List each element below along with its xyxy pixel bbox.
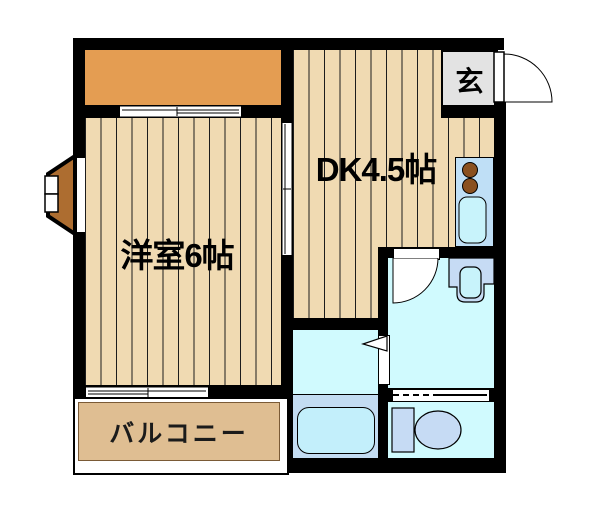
accordion-partition-dashed-line — [393, 394, 439, 396]
wall-left-lower — [73, 232, 85, 397]
washbasin-bowl — [460, 267, 481, 298]
toilet-tank — [392, 408, 414, 452]
wall-top — [73, 38, 504, 50]
balcony-deck: バルコニー — [78, 402, 280, 461]
wall-bottom-right — [281, 458, 506, 473]
entrance-door-icon — [490, 45, 560, 110]
closet-sliding-door — [120, 106, 242, 117]
toilet-icon — [388, 402, 494, 458]
stove-burner-icon — [463, 163, 478, 178]
kitchen-sink-icon — [459, 197, 486, 243]
bay-window-icon — [42, 150, 82, 240]
bath-folding-door-flag — [363, 336, 387, 351]
stove-burner-icon — [463, 179, 478, 194]
genkan-label: 玄 — [455, 60, 483, 100]
wall-dk-bottom — [281, 318, 388, 330]
entrance-door-swing-arc — [504, 54, 552, 102]
closet-sliding-door-icon — [119, 105, 242, 118]
dk-label: DK4.5帖 — [294, 147, 458, 187]
bay-window-pane — [45, 194, 58, 212]
entrance-door-leaf — [494, 52, 504, 102]
closet — [85, 50, 281, 105]
floorplan-canvas: 玄 — [0, 0, 600, 507]
accordion-partition-solid-line — [439, 394, 487, 396]
washroom-door-swing-arc — [393, 258, 438, 303]
toilet-bowl — [415, 411, 461, 449]
wall-right — [494, 100, 506, 473]
bay-window-pane — [45, 176, 58, 194]
kitchen-unit — [455, 157, 494, 247]
washbasin-icon — [445, 254, 500, 309]
wall-genkan-bottom — [441, 105, 494, 118]
washroom-door-icon — [388, 258, 448, 308]
balcony-label: バルコニー — [109, 414, 249, 450]
western-room-label: 洋室6帖 — [95, 233, 259, 273]
bathtub-icon — [297, 407, 375, 454]
room-balcony: バルコニー — [73, 397, 289, 475]
divider-sliding-door-icon — [281, 122, 293, 256]
wall-left-upper — [73, 50, 85, 158]
accordion-partition — [392, 389, 490, 402]
bath-folding-door-icon — [358, 330, 392, 356]
